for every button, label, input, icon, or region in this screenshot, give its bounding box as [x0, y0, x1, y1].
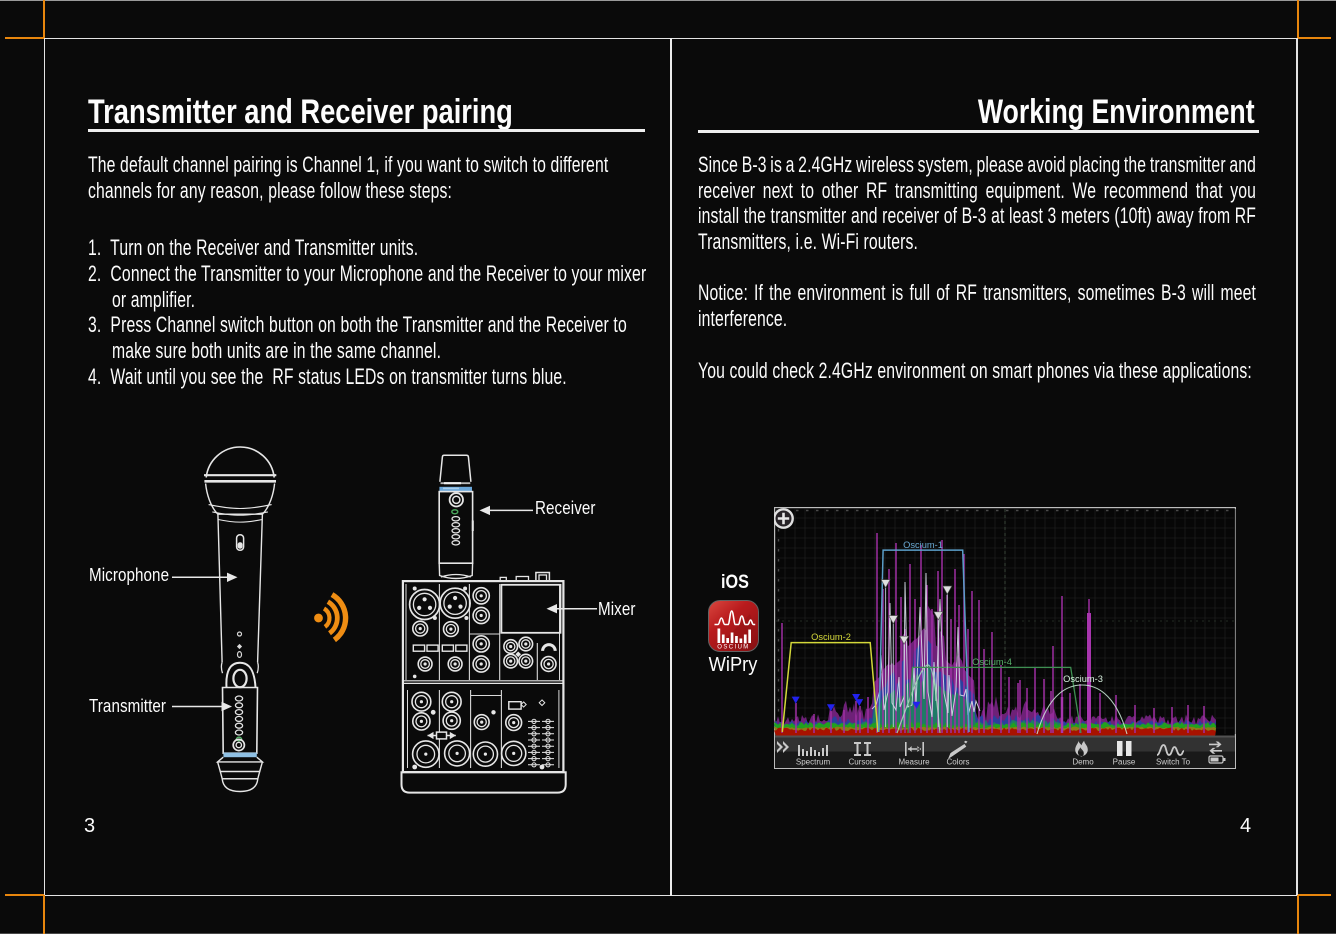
svg-text:Oscium-3: Oscium-3 — [1063, 674, 1103, 684]
svg-text:Measure: Measure — [898, 758, 930, 767]
svg-text:Spectrum: Spectrum — [796, 758, 831, 767]
svg-text:Oscium-1: Oscium-1 — [903, 540, 943, 550]
svg-text:Switch To: Switch To — [1156, 758, 1191, 767]
svg-text:Oscium-4: Oscium-4 — [972, 657, 1012, 667]
svg-text:Oscium-2: Oscium-2 — [811, 632, 851, 642]
svg-text:Demo: Demo — [1072, 758, 1094, 767]
svg-text:Colors: Colors — [946, 758, 969, 767]
svg-text:Cursors: Cursors — [848, 758, 876, 767]
svg-text:OSCIUM: OSCIUM — [718, 644, 750, 650]
svg-text:Pause: Pause — [1113, 758, 1136, 767]
